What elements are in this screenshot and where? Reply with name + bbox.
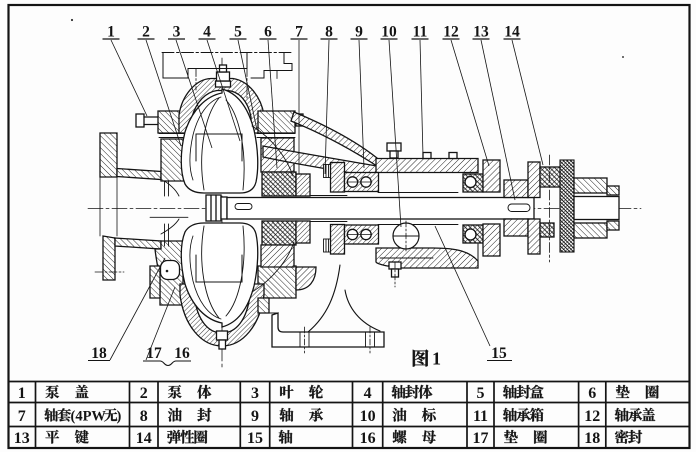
- svg-text:18: 18: [584, 430, 600, 447]
- svg-text:11: 11: [413, 24, 428, 41]
- svg-text:3: 3: [251, 385, 259, 402]
- svg-text:6: 6: [264, 24, 272, 41]
- svg-text:6: 6: [588, 385, 596, 402]
- svg-text:8: 8: [325, 24, 333, 41]
- svg-text:17: 17: [473, 430, 489, 447]
- svg-text:1: 1: [107, 24, 115, 41]
- svg-text:15: 15: [491, 345, 507, 362]
- svg-text:14: 14: [136, 430, 152, 447]
- svg-text:2: 2: [140, 385, 148, 402]
- svg-text:(4PW: (4PW: [71, 409, 107, 425]
- svg-text:13: 13: [14, 430, 30, 447]
- svg-text:5: 5: [234, 24, 242, 41]
- svg-text:18: 18: [91, 345, 107, 362]
- svg-text:11: 11: [473, 408, 488, 425]
- svg-text:10: 10: [381, 24, 397, 41]
- svg-text:12: 12: [443, 24, 459, 41]
- svg-text:7: 7: [295, 24, 303, 41]
- svg-text:4: 4: [203, 24, 211, 41]
- svg-text:9: 9: [251, 408, 259, 425]
- svg-text:1: 1: [432, 349, 441, 369]
- svg-text:7: 7: [18, 408, 26, 425]
- svg-text:9: 9: [355, 24, 363, 41]
- svg-text:10: 10: [360, 408, 376, 425]
- svg-text:3: 3: [173, 24, 181, 41]
- svg-text:16: 16: [174, 345, 190, 362]
- svg-text:13: 13: [473, 24, 489, 41]
- svg-text:1: 1: [18, 385, 26, 402]
- svg-text:8: 8: [140, 408, 148, 425]
- svg-text:2: 2: [142, 24, 150, 41]
- svg-text:): ): [117, 409, 122, 425]
- svg-text:17: 17: [146, 345, 162, 362]
- svg-text:14: 14: [504, 24, 520, 41]
- svg-text:5: 5: [477, 385, 485, 402]
- svg-text:16: 16: [360, 430, 376, 447]
- svg-text:15: 15: [247, 430, 263, 447]
- svg-text:4: 4: [364, 385, 372, 402]
- svg-text:12: 12: [584, 408, 600, 425]
